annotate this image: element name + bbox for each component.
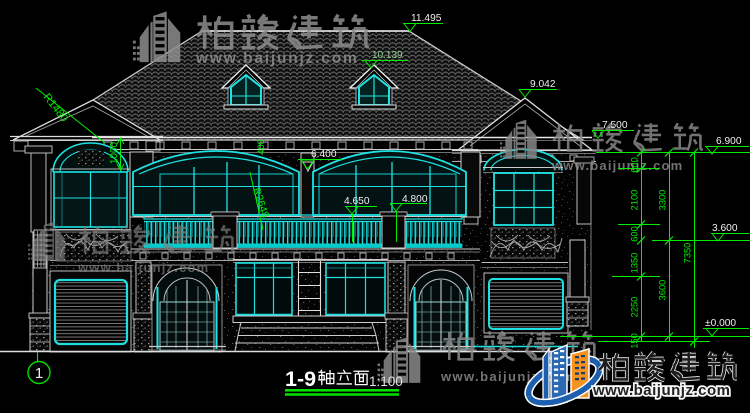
svg-text:2100: 2100: [630, 190, 640, 211]
svg-text:9.042: 9.042: [530, 79, 556, 90]
svg-text:www.baijunjz.com: www.baijunjz.com: [77, 260, 209, 275]
svg-text:2250: 2250: [630, 297, 640, 318]
svg-text:7.500: 7.500: [602, 120, 628, 131]
svg-text:1350: 1350: [630, 253, 640, 274]
svg-text:www.baijunjz.com: www.baijunjz.com: [551, 158, 683, 173]
svg-text:150: 150: [630, 333, 640, 349]
svg-text:www.baijunjz.com: www.baijunjz.com: [195, 50, 359, 67]
svg-text:10.139: 10.139: [372, 50, 403, 61]
svg-text:1-9: 1-9: [285, 367, 316, 391]
svg-text:600: 600: [630, 226, 640, 242]
svg-text:www.baijunjz.com: www.baijunjz.com: [592, 382, 730, 399]
svg-text:1: 1: [35, 365, 43, 382]
svg-text:3300: 3300: [658, 190, 668, 211]
svg-text:6.900: 6.900: [716, 136, 742, 147]
svg-text:3600: 3600: [658, 280, 668, 301]
svg-text:3.600: 3.600: [712, 223, 738, 234]
svg-text:6.400: 6.400: [311, 149, 337, 160]
svg-text:600: 600: [630, 157, 640, 173]
svg-text:4.650: 4.650: [344, 196, 370, 207]
svg-text:4.800: 4.800: [402, 194, 428, 205]
svg-text:400: 400: [256, 139, 266, 154]
svg-text:1:100: 1:100: [369, 374, 403, 389]
svg-text:11.495: 11.495: [411, 13, 442, 24]
svg-text:1000: 1000: [109, 141, 120, 164]
svg-text:±0.000: ±0.000: [705, 318, 736, 329]
svg-text:7350: 7350: [683, 243, 693, 264]
